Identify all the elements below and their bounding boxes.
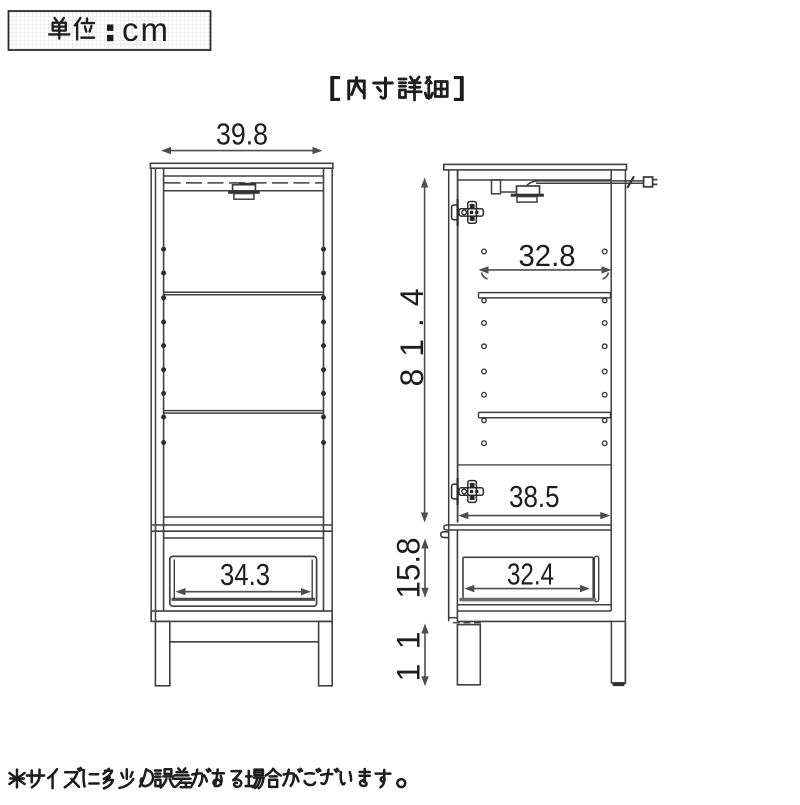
svg-text:34.3: 34.3 (220, 557, 270, 592)
svg-text:cm: cm (122, 11, 168, 48)
svg-text:32.8: 32.8 (519, 238, 576, 273)
svg-text:38.5: 38.5 (509, 479, 560, 514)
svg-text:32.4: 32.4 (507, 557, 554, 592)
svg-text:15.8: 15.8 (390, 538, 426, 599)
svg-text:39.8: 39.8 (216, 117, 268, 152)
